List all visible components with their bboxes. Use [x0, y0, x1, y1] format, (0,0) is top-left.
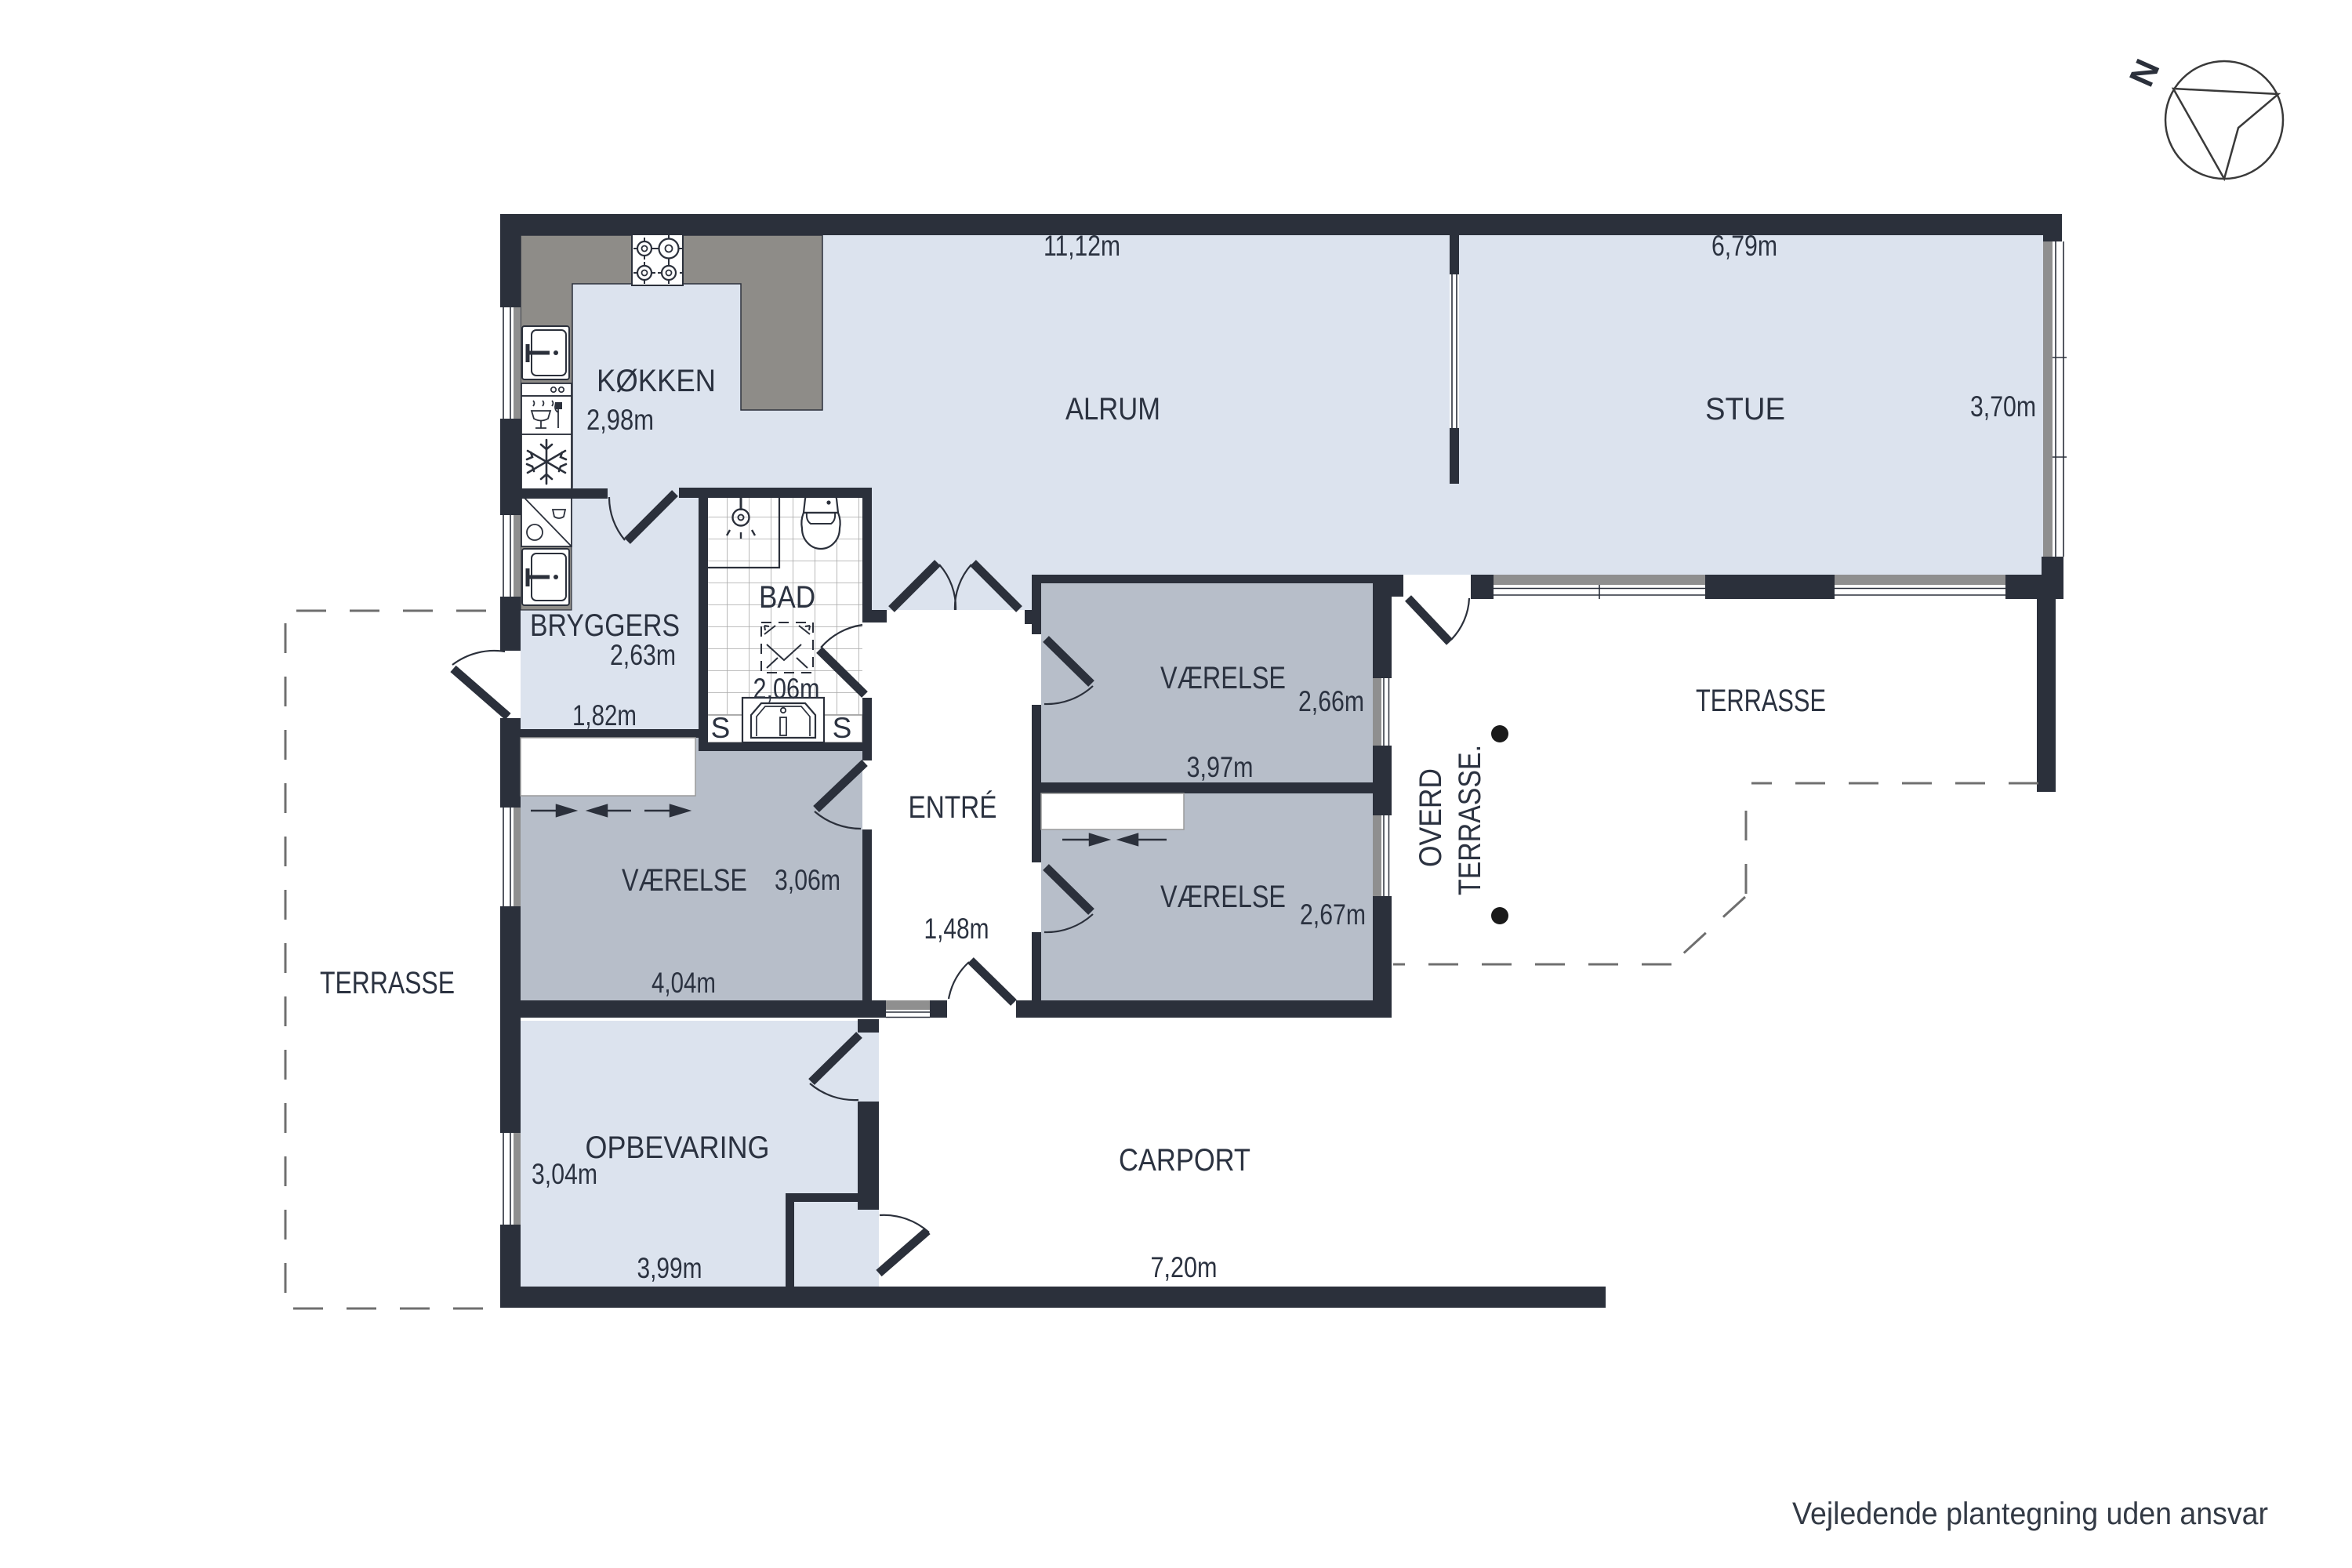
svg-text:1,82m: 1,82m — [572, 699, 637, 731]
svg-text:1,48m: 1,48m — [924, 913, 989, 945]
svg-text:TERRASSE.: TERRASSE. — [1453, 745, 1487, 895]
svg-text:S: S — [711, 712, 731, 744]
svg-text:4,04m: 4,04m — [652, 967, 716, 999]
svg-text:STUE: STUE — [1705, 392, 1785, 426]
svg-text:OPBEVARING: OPBEVARING — [586, 1131, 770, 1165]
svg-text:2,67m: 2,67m — [1300, 898, 1366, 931]
svg-text:3,04m: 3,04m — [532, 1158, 597, 1190]
svg-text:3,99m: 3,99m — [637, 1252, 702, 1284]
svg-text:ALRUM: ALRUM — [1065, 392, 1160, 426]
svg-text:11,12m: 11,12m — [1044, 230, 1120, 262]
svg-text:TERRASSE: TERRASSE — [320, 966, 455, 1000]
svg-text:3,97m: 3,97m — [1187, 751, 1254, 783]
svg-text:BAD: BAD — [759, 580, 815, 615]
svg-text:VÆRELSE: VÆRELSE — [622, 863, 747, 898]
svg-text:2,66m: 2,66m — [1298, 685, 1364, 717]
svg-text:3,70m: 3,70m — [1970, 390, 2036, 423]
svg-text:3,06m: 3,06m — [775, 864, 840, 896]
svg-text:S: S — [833, 712, 852, 744]
svg-text:KØKKEN: KØKKEN — [597, 364, 716, 398]
svg-text:VÆRELSE: VÆRELSE — [1160, 880, 1286, 914]
svg-text:2,98m: 2,98m — [586, 404, 654, 436]
svg-text:Vejledende plantegning uden an: Vejledende plantegning uden ansvar — [1792, 1497, 2268, 1531]
svg-text:6,79m: 6,79m — [1711, 230, 1777, 262]
svg-text:ENTRÉ: ENTRÉ — [909, 789, 997, 825]
svg-text:2,06m: 2,06m — [753, 673, 820, 705]
svg-text:TERRASSE: TERRASSE — [1696, 684, 1826, 718]
svg-text:7,20m: 7,20m — [1151, 1251, 1218, 1283]
svg-text:BRYGGERS: BRYGGERS — [530, 608, 680, 643]
svg-text:CARPORT: CARPORT — [1119, 1143, 1250, 1178]
svg-text:2,63m: 2,63m — [610, 639, 676, 671]
svg-text:VÆRELSE: VÆRELSE — [1160, 661, 1286, 695]
svg-text:OVERD: OVERD — [1414, 768, 1448, 867]
